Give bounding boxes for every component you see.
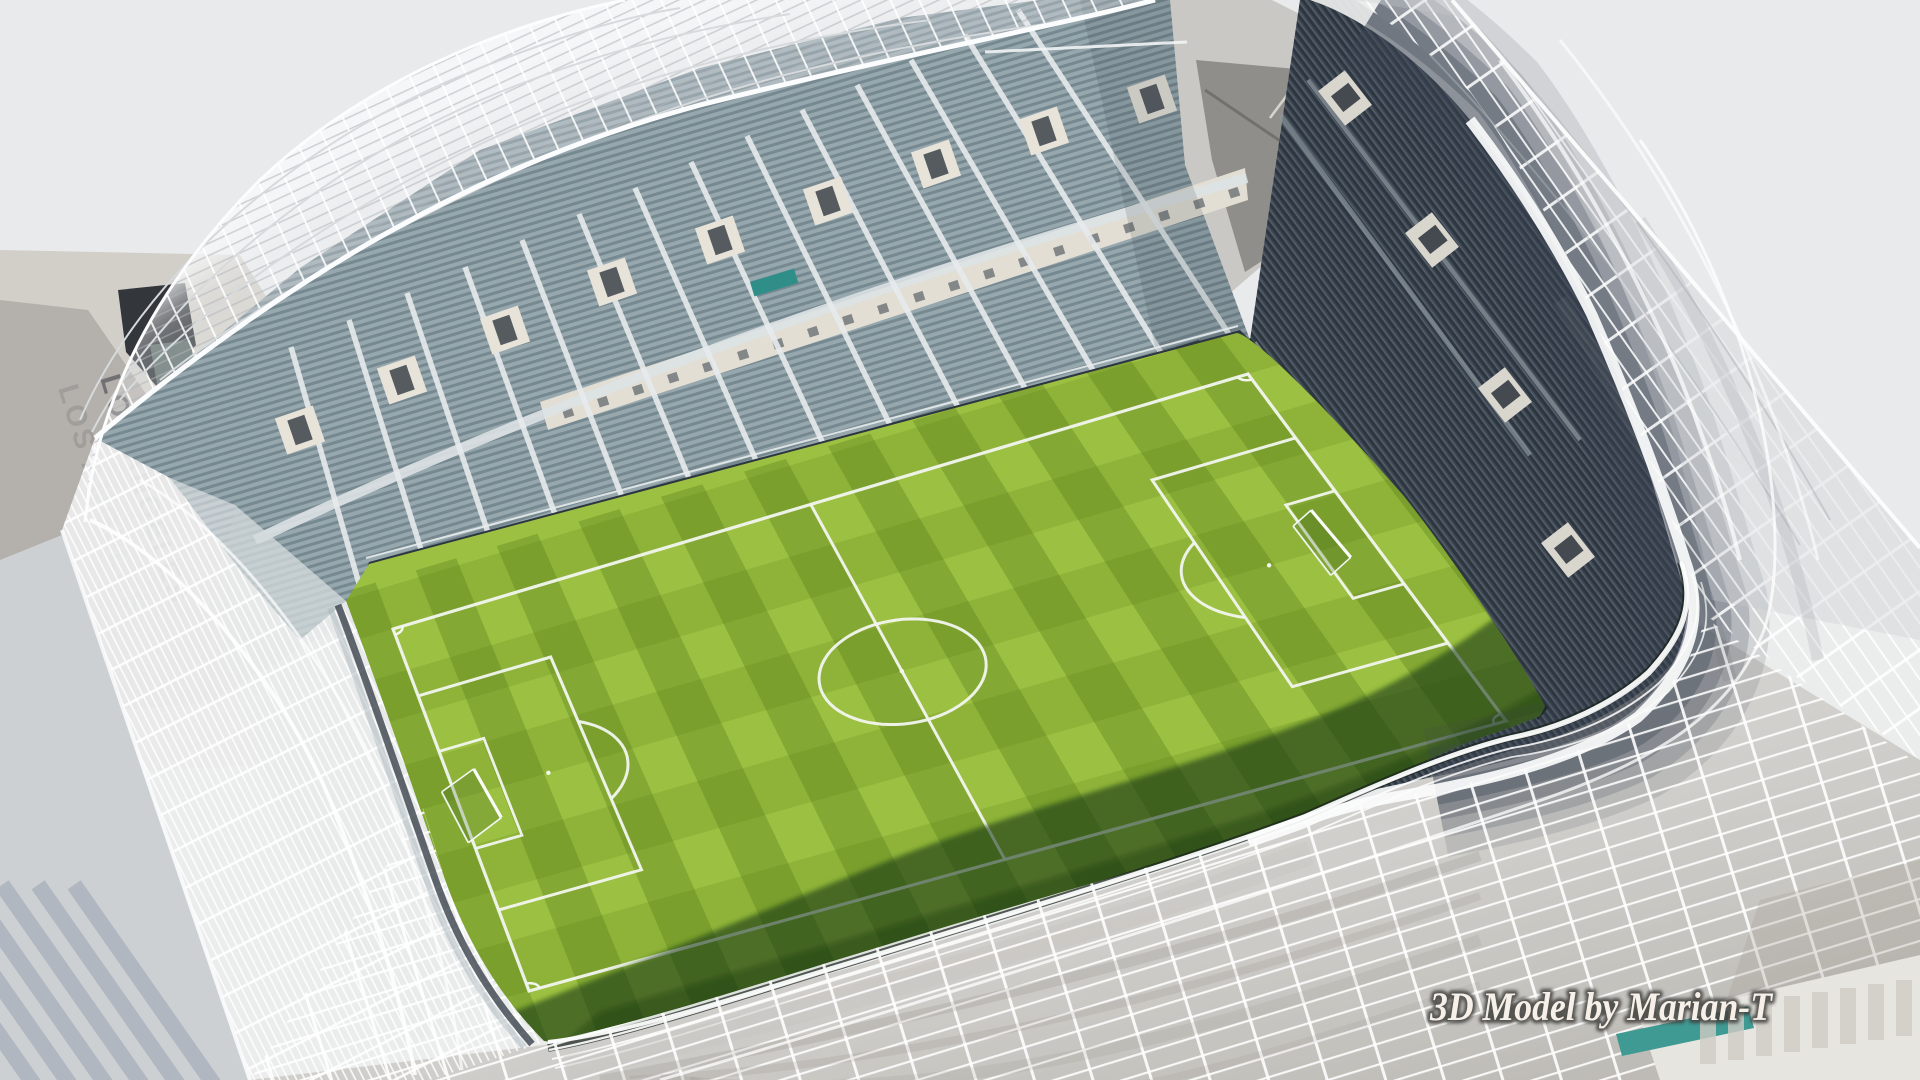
- svg-text:3D Model by Marian-T: 3D Model by Marian-T: [1429, 984, 1773, 1029]
